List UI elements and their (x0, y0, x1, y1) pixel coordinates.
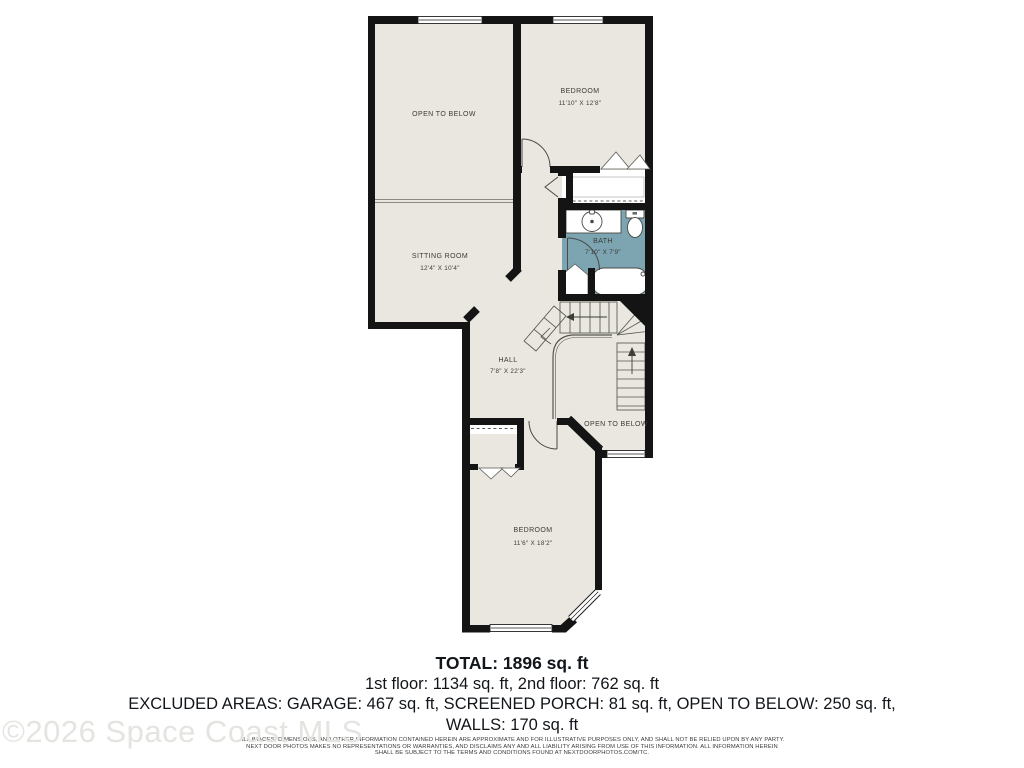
summary-floors: 1st floor: 1134 sq. ft, 2nd floor: 762 s… (0, 674, 1024, 694)
label-hall: HALL (498, 357, 517, 364)
label-open-below-upper: OPEN TO BELOW (412, 111, 476, 118)
label-open-below-lower: OPEN TO BELOW (584, 421, 648, 428)
dims-sitting-room: 12'4" X 10'4" (420, 265, 460, 272)
sink-faucet (590, 210, 595, 214)
dims-hall: 7'8" X 22'3" (490, 368, 526, 375)
label-bedroom-lower: BEDROOM (514, 527, 553, 534)
disclaimer-line-3: SHALL BE SUBJECT TO THE TERMS AND CONDIT… (0, 750, 1024, 757)
tub-faucet (641, 272, 645, 276)
toilet-bowl (628, 218, 643, 238)
summary-total: TOTAL: 1896 sq. ft (0, 652, 1024, 674)
bathtub (592, 268, 648, 295)
floor-plan-page: OPEN TO BELOW BEDROOM 11'10" X 12'8" SIT… (0, 0, 1024, 768)
window-open-below-top (418, 17, 482, 24)
label-bedroom-upper: BEDROOM (561, 88, 600, 95)
sink-drain (590, 220, 594, 224)
watermark: ©2026 Space Coast MLS (2, 714, 363, 750)
label-bath: BATH (593, 238, 613, 245)
label-sitting-room: SITTING ROOM (412, 253, 468, 260)
upper-closet-shelf (572, 177, 644, 197)
dims-bedroom-lower: 11'6" X 18'2" (513, 540, 552, 547)
window-open-below-lower (607, 451, 645, 458)
dims-bedroom-upper: 11'10" X 12'8" (559, 100, 602, 107)
window-bedroom-top (553, 17, 603, 24)
window-bedroom-bottom (490, 625, 552, 632)
summary-excluded-1: EXCLUDED AREAS: GARAGE: 467 sq. ft, SCRE… (0, 694, 1024, 714)
dims-bath: 7'10" X 7'9" (585, 249, 621, 256)
toilet-button (633, 212, 638, 215)
